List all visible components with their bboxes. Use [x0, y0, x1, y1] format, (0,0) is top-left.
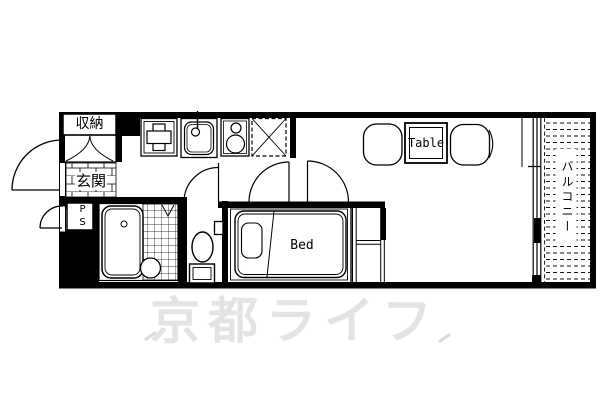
balcony-label: バルコニー	[556, 151, 576, 243]
bed-label: Bed	[272, 238, 332, 253]
wall-bednook-top	[218, 202, 385, 209]
wall-shelf-stub	[381, 208, 386, 240]
entrance-label-text: 玄関	[75, 172, 107, 190]
floorplan-canvas: 京都ライフ	[0, 0, 600, 400]
closet-label: 収納	[63, 114, 116, 135]
floorplan-drawing	[0, 0, 600, 400]
wall-hall-south	[59, 197, 187, 203]
ps-door	[40, 206, 62, 228]
wall-closet-right	[116, 112, 122, 162]
wall-corner-block	[122, 112, 140, 136]
entrance-door-frame	[60, 163, 66, 197]
paper-holder-icon	[215, 222, 224, 235]
entrance-label: 玄関	[66, 170, 116, 191]
ps-door-swing	[40, 206, 62, 228]
pipe-space-label: PS	[72, 204, 88, 229]
wall-bath-left	[93, 198, 99, 282]
watermark-ticks	[146, 333, 449, 341]
wall-bath-toilet-divider	[178, 198, 187, 283]
bathtub-icon	[102, 206, 143, 278]
bathroom	[99, 204, 178, 281]
entrance-door	[12, 140, 62, 190]
wash-basin-icon	[141, 258, 161, 278]
table-label: Table	[405, 123, 447, 163]
wall-right	[590, 112, 596, 289]
entrance-door-swing	[12, 140, 62, 190]
wall-left-lower-mass	[59, 230, 93, 289]
wall-kitchen-room-divider	[290, 112, 296, 158]
toilet-bowl-icon	[192, 232, 213, 262]
